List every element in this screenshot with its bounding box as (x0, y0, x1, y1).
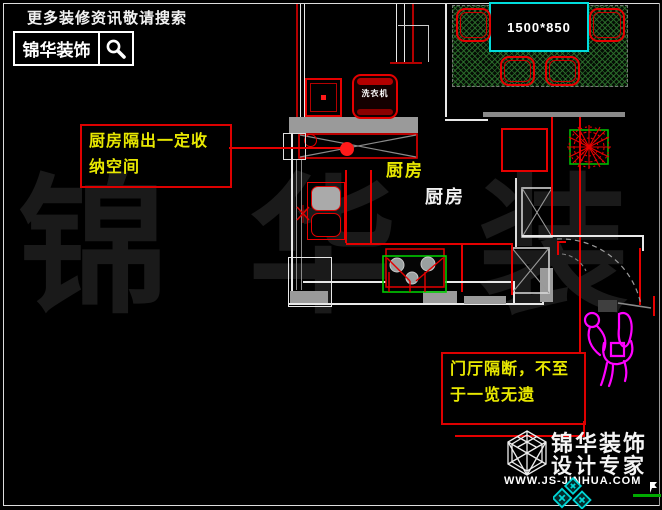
counter-edge-red (345, 170, 347, 243)
wall-line (515, 178, 517, 247)
hall-note-line2: 于一览无遗 (450, 383, 577, 409)
red-marker-dot (340, 142, 354, 156)
plant (564, 121, 616, 173)
wall-line (428, 25, 429, 62)
column-square-red (501, 128, 548, 172)
kitchen-label-yellow: 厨房 (386, 156, 424, 181)
appliance-square (305, 78, 342, 117)
green-scale-line (633, 494, 661, 497)
wall-line-red (296, 4, 298, 117)
chair (500, 56, 535, 86)
washing-machine-bottom (357, 109, 393, 115)
red-wall-line (551, 117, 553, 236)
brand-label: 锦华装饰 (15, 33, 100, 64)
wall-line (303, 281, 387, 283)
hall-note-line1: 门厅隔断，不至 (450, 357, 577, 383)
chair (589, 8, 625, 42)
wall-line (445, 281, 513, 283)
wall-line (300, 4, 301, 117)
header-tagline: 更多装修资讯敬请搜索 (27, 7, 187, 28)
wall-fill-gray (289, 117, 418, 133)
dining-table-size: 1500*850 (507, 20, 571, 35)
washing-machine-label: 洗衣机 (355, 88, 395, 99)
wall-line (445, 119, 488, 121)
washing-machine-top (357, 78, 393, 85)
viewport-border-left (3, 3, 4, 506)
cad-floorplan-screenshot: 锦 华 装 饰 更多装修资讯敬请搜索 锦华装饰 厨房隔出一定收 纳空间 门厅隔断… (0, 0, 662, 510)
counter-edge-red (461, 243, 463, 292)
chair (545, 56, 580, 86)
wall-fill-gray (483, 112, 625, 117)
kitchen-note-box: 厨房隔出一定收 纳空间 (80, 124, 232, 188)
wall-line (404, 4, 405, 62)
magnifier-icon (100, 33, 132, 64)
niche-line-red (390, 62, 422, 64)
dining-wall-line (445, 4, 447, 117)
crossed-closet-1 (521, 187, 553, 238)
search-box-graphic: 锦华装饰 (13, 31, 134, 66)
kitchen-note-line1: 厨房隔出一定收 (89, 129, 223, 155)
hall-note-box: 门厅隔断，不至 于一览无遗 (441, 352, 586, 425)
counter-edge-red (370, 170, 372, 243)
sink-basin-top (311, 186, 341, 211)
flag-mark-icon (649, 481, 659, 494)
door-hinge-red (557, 241, 566, 243)
wall-line (396, 4, 397, 62)
dining-table: 1500*850 (489, 2, 589, 52)
counter-front-red (346, 243, 513, 245)
kitchen-note-line2: 纳空间 (89, 155, 223, 181)
chair (456, 8, 491, 42)
wall-fill-gray (464, 296, 506, 304)
faucet-icon (295, 204, 311, 224)
person-figure (578, 303, 658, 388)
door-hinge-red (557, 241, 559, 255)
stove (382, 248, 448, 294)
cube-logo-icon (505, 429, 549, 477)
wall-line-red (412, 4, 414, 62)
red-wall-line (511, 243, 513, 295)
compass-diamonds-icon (553, 477, 597, 509)
kitchen-label-white: 厨房 (425, 183, 465, 209)
kitchen-note-leader-line (229, 147, 342, 149)
wall-line (398, 25, 428, 26)
sink-basin-bottom (311, 213, 341, 237)
appliance-center-dot (321, 95, 326, 100)
